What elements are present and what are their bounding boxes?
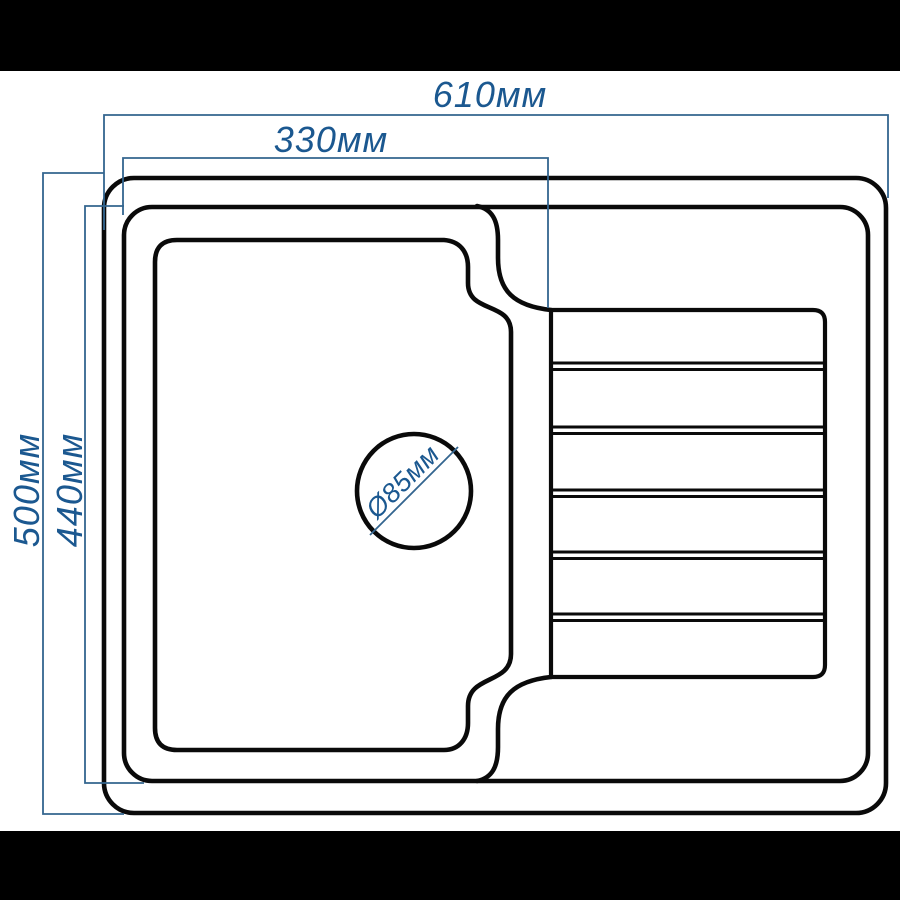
sink-drawing-svg xyxy=(0,0,900,900)
bowl-outline xyxy=(155,240,511,750)
drainboard-ridges xyxy=(551,363,825,621)
sink-technical-drawing: 610мм 330мм 500мм 440мм Ø85мм xyxy=(0,0,900,900)
dim-label-bowl-width: 330мм xyxy=(274,122,388,158)
dim-line-overall-width xyxy=(104,115,888,230)
dim-line-rim-depth xyxy=(85,206,144,783)
dim-label-overall-width: 610мм xyxy=(433,77,547,113)
sink-rim-edge xyxy=(124,207,868,781)
dim-label-overall-depth: 500мм xyxy=(9,433,45,547)
dim-line-bowl-width xyxy=(123,158,548,308)
bowl-drainboard-transition-top xyxy=(477,206,551,310)
bowl-drainboard-transition-bottom xyxy=(477,677,551,781)
dim-label-rim-depth: 440мм xyxy=(52,433,88,547)
